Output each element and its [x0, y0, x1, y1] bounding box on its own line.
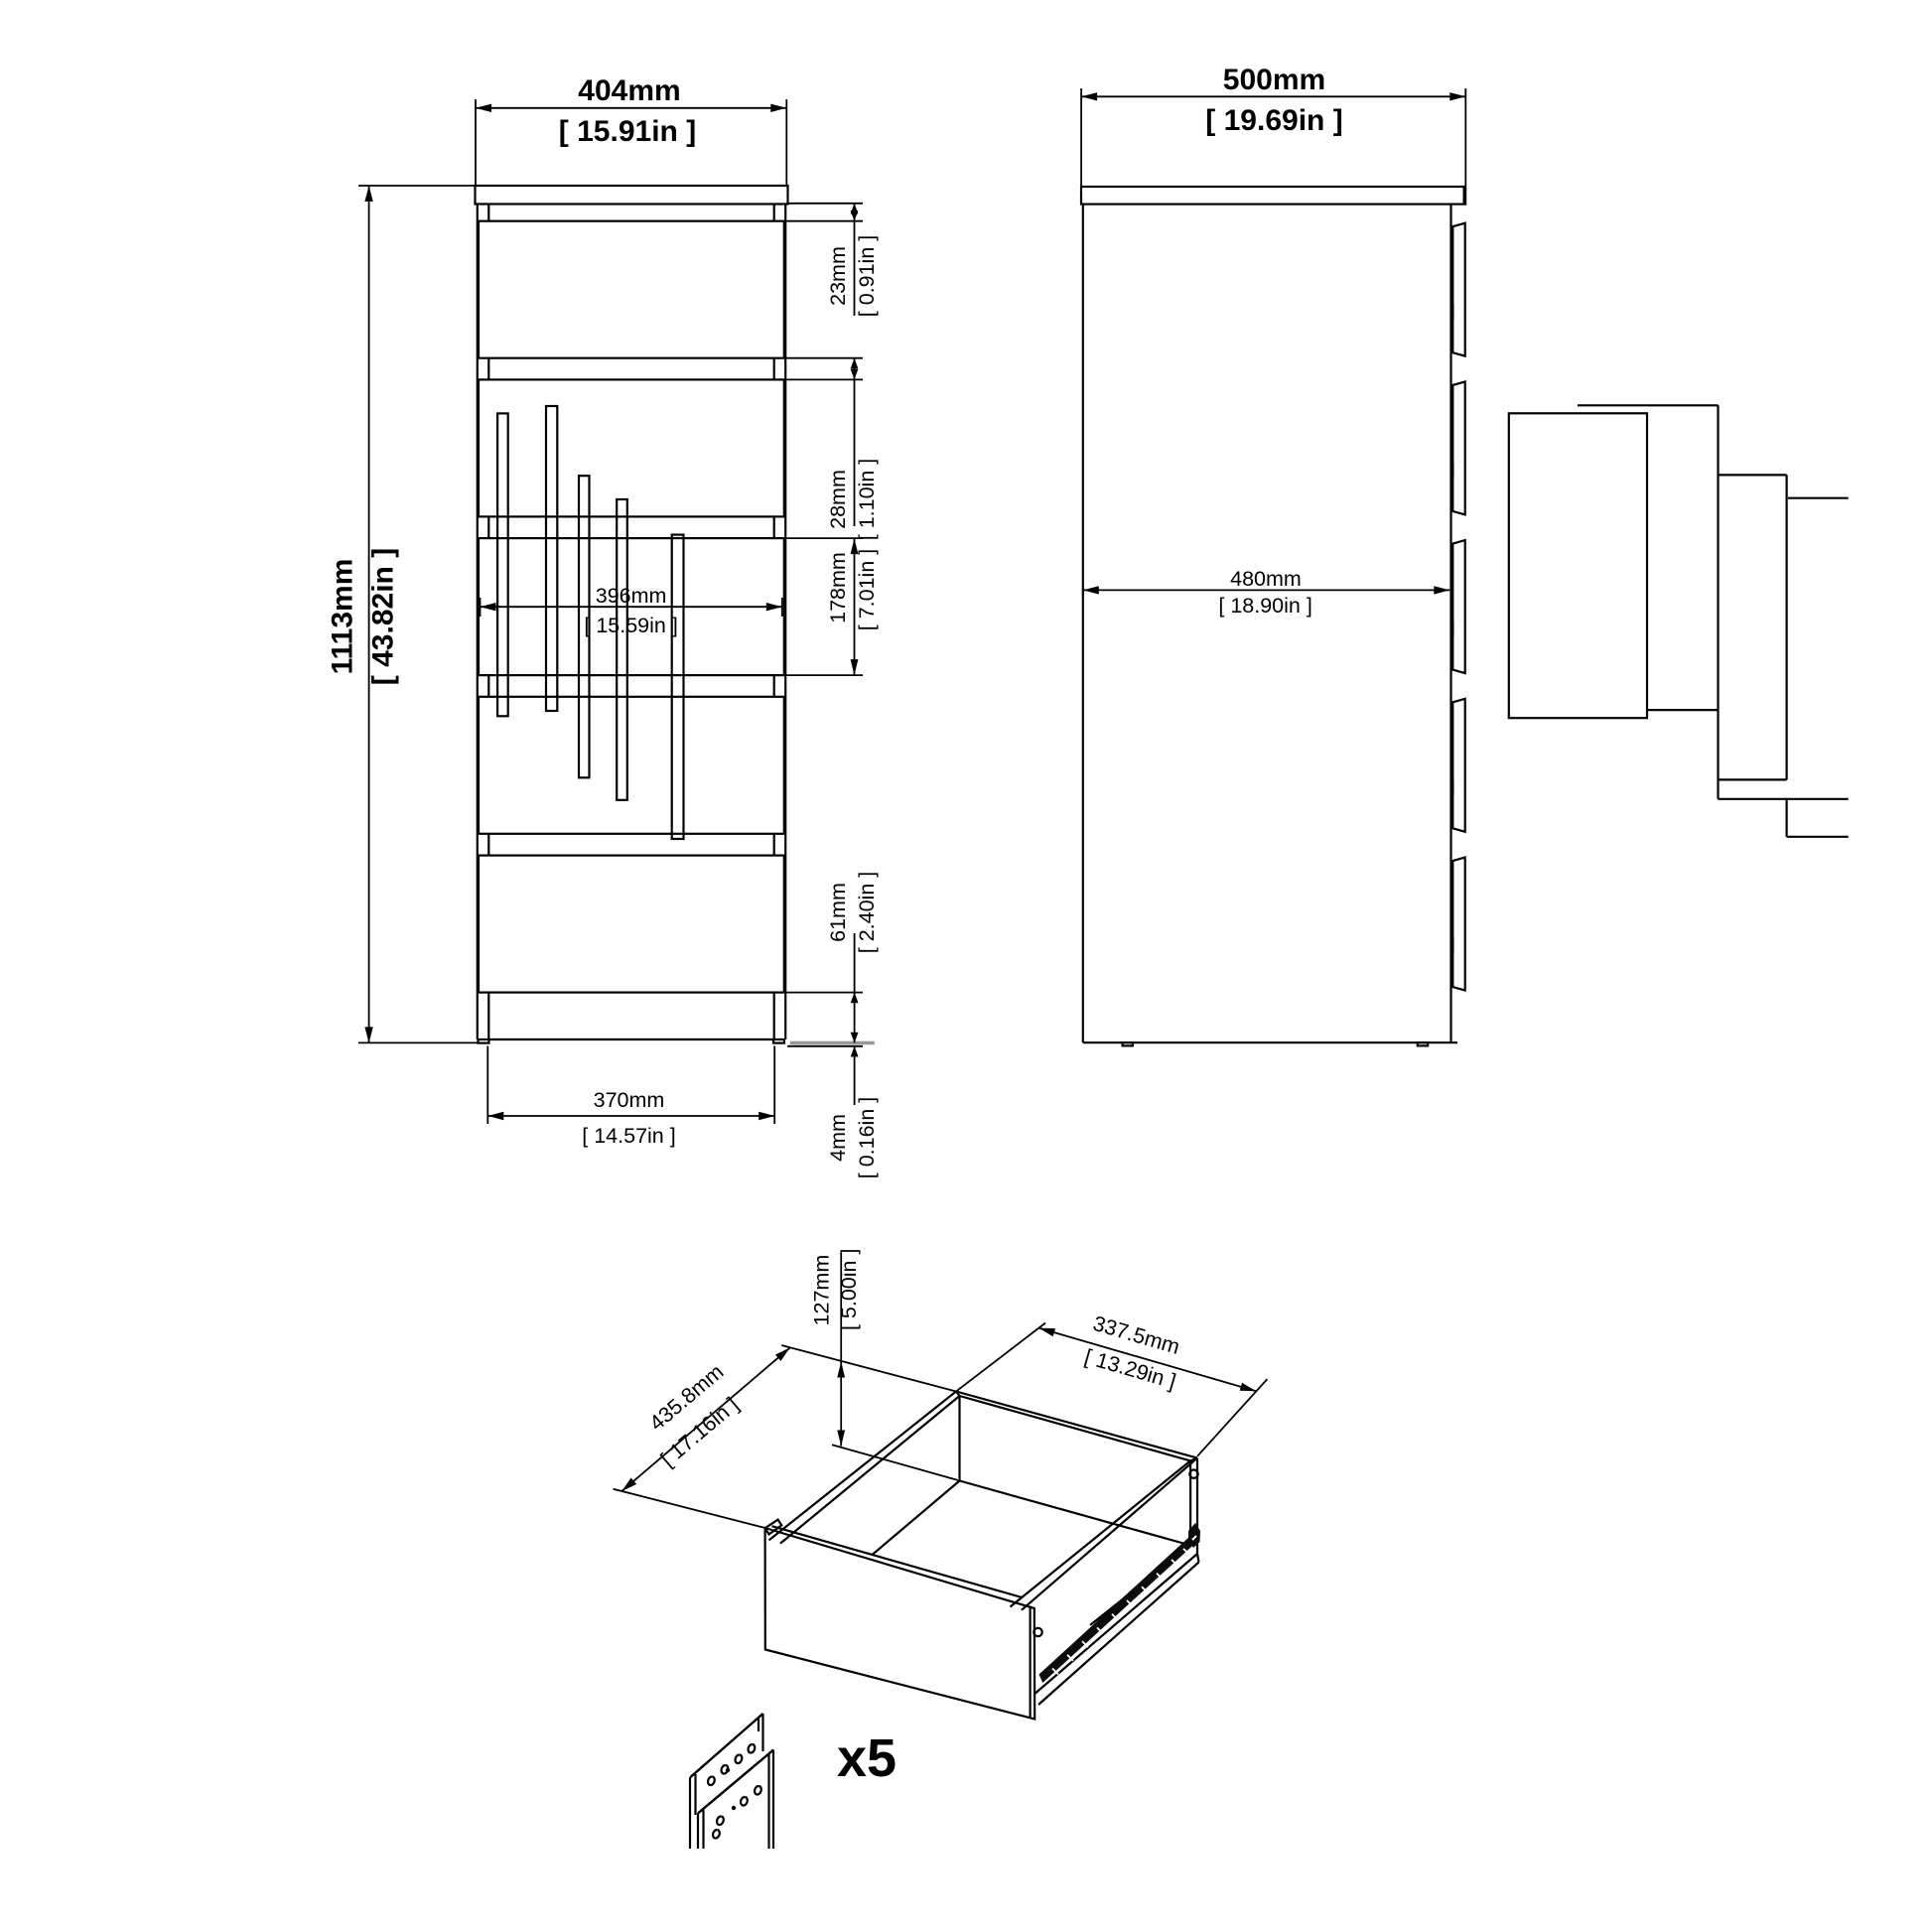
svg-text:[ 18.90in ]: [ 18.90in ] [1218, 594, 1311, 618]
svg-text:[ 15.59in ]: [ 15.59in ] [584, 614, 677, 637]
svg-text:61mm: 61mm [826, 883, 850, 942]
svg-text:[ 0.16in ]: [ 0.16in ] [855, 1097, 879, 1178]
svg-text:1113mm: 1113mm [327, 559, 359, 675]
svg-text:[ 2.40in ]: [ 2.40in ] [855, 872, 879, 953]
svg-text:500mm: 500mm [1223, 64, 1325, 96]
svg-text:[ 15.91in ]: [ 15.91in ] [559, 115, 696, 148]
svg-text:[ 14.57in ]: [ 14.57in ] [582, 1124, 675, 1148]
svg-text:[ 1.10in ]: [ 1.10in ] [855, 459, 879, 540]
svg-text:178mm: 178mm [826, 552, 850, 623]
svg-text:[ 7.01in ]: [ 7.01in ] [855, 549, 879, 630]
svg-text:480mm: 480mm [1230, 567, 1302, 591]
svg-text:x5: x5 [837, 1728, 897, 1788]
svg-text:370mm: 370mm [594, 1088, 665, 1112]
svg-text:28mm: 28mm [826, 470, 850, 529]
svg-text:127mm: 127mm [810, 1255, 834, 1326]
svg-text:23mm: 23mm [826, 246, 850, 306]
svg-text:396mm: 396mm [596, 584, 667, 608]
svg-text:4mm: 4mm [826, 1114, 850, 1162]
svg-text:404mm: 404mm [578, 74, 680, 107]
svg-text:[ 43.82in ]: [ 43.82in ] [367, 548, 400, 685]
svg-text:[ 0.91in ]: [ 0.91in ] [855, 235, 879, 317]
svg-text:[ 19.69in ]: [ 19.69in ] [1205, 104, 1342, 137]
